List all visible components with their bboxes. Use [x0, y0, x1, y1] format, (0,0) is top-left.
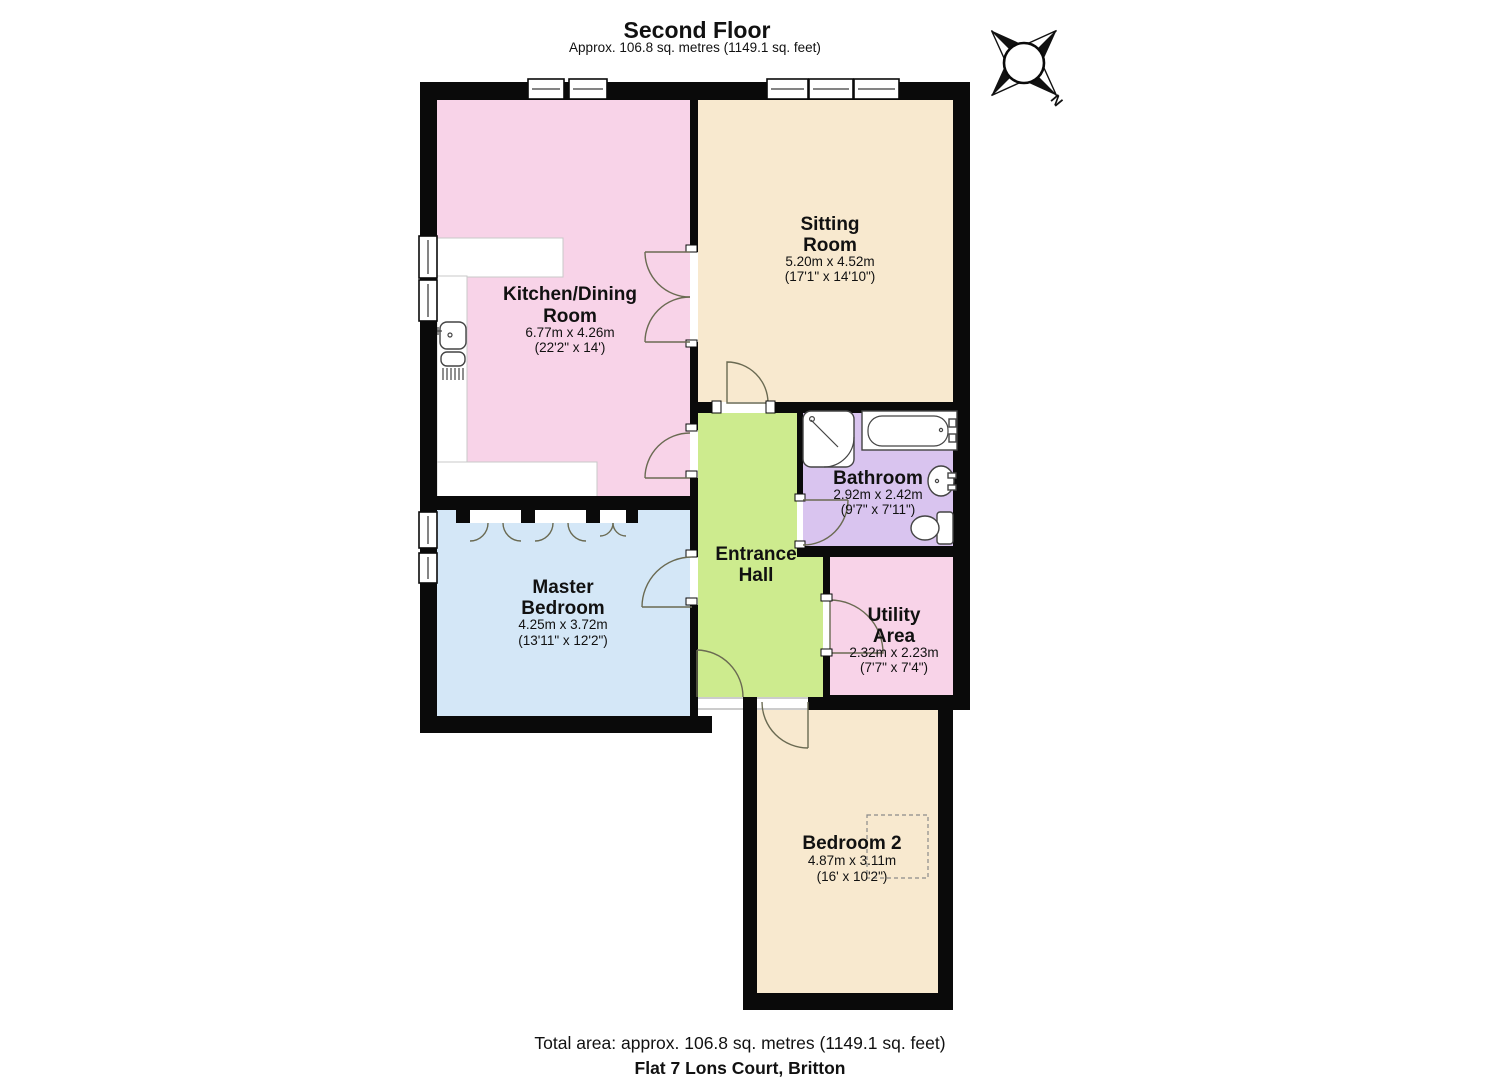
svg-text:Bathroom: Bathroom [833, 468, 923, 489]
svg-text:2.92m x 2.42m: 2.92m x 2.42m [833, 487, 922, 502]
svg-text:(7'7" x 7'4"): (7'7" x 7'4") [860, 660, 928, 675]
svg-text:4.25m x 3.72m: 4.25m x 3.72m [518, 617, 607, 632]
svg-text:2.32m x 2.23m: 2.32m x 2.23m [849, 645, 938, 660]
shower [803, 411, 854, 467]
svg-text:Bedroom 2: Bedroom 2 [802, 833, 901, 854]
sitting-room-windows [767, 79, 899, 99]
wall-bedroom2-bottom [743, 993, 953, 1010]
svg-text:Room: Room [543, 306, 597, 327]
wall-utility-bottom [823, 695, 970, 710]
kitchen-counter-top [437, 238, 563, 277]
page-subtitle: Approx. 106.8 sq. metres (1149.1 sq. fee… [569, 40, 821, 55]
wall-left [420, 82, 437, 733]
svg-text:Hall: Hall [739, 565, 774, 586]
svg-text:(17'1" x 14'10"): (17'1" x 14'10") [785, 269, 876, 284]
svg-text:Entrance: Entrance [715, 544, 796, 565]
label-bedroom-2: Bedroom 2 4.87m x 3.11m (16' x 10'2") [802, 833, 901, 884]
svg-text:(13'11" x 12'2"): (13'11" x 12'2") [518, 633, 608, 648]
footer-address: Flat 7 Lons Court, Britton [635, 1058, 846, 1078]
master-bedroom-windows [419, 512, 437, 583]
kitchen-side-windows [419, 236, 437, 321]
floorplan-svg: N Second Floor Approx. 106.8 sq. metres … [0, 0, 1485, 1080]
svg-text:Utility: Utility [868, 605, 921, 626]
svg-text:5.20m x 4.52m: 5.20m x 4.52m [785, 254, 874, 269]
wall-right [953, 82, 970, 710]
compass-rose-icon [992, 31, 1057, 96]
wall-bedroom2-left [743, 697, 757, 1010]
wall-bedroom2-right [938, 710, 953, 1010]
svg-text:Sitting: Sitting [800, 214, 859, 235]
compass: N [992, 31, 1067, 110]
svg-text:(16' x 10'2"): (16' x 10'2") [817, 869, 888, 884]
compass-north-label: N [1048, 91, 1067, 109]
svg-text:(22'2" x 14'): (22'2" x 14') [535, 340, 606, 355]
svg-text:6.77m x 4.26m: 6.77m x 4.26m [525, 325, 614, 340]
svg-text:Room: Room [803, 235, 857, 256]
wall-bathroom-bottom [797, 546, 970, 557]
footer-total-area: Total area: approx. 106.8 sq. metres (11… [534, 1033, 945, 1053]
svg-text:(9'7" x 7'11"): (9'7" x 7'11") [841, 502, 916, 517]
svg-text:4.87m x 3.11m: 4.87m x 3.11m [808, 853, 896, 868]
svg-text:Bedroom: Bedroom [521, 598, 604, 619]
wall-bottom-upper-block [420, 716, 712, 733]
floorplan-page: N Second Floor Approx. 106.8 sq. metres … [0, 0, 1485, 1080]
kitchen-counter-bottom [437, 462, 597, 500]
svg-text:Kitchen/Dining: Kitchen/Dining [503, 284, 637, 305]
svg-text:Master: Master [532, 577, 594, 598]
bathtub [862, 411, 957, 450]
label-bathroom: Bathroom 2.92m x 2.42m (9'7" x 7'11") [833, 468, 923, 517]
svg-text:Area: Area [873, 626, 916, 647]
wall-master-top [437, 496, 690, 510]
